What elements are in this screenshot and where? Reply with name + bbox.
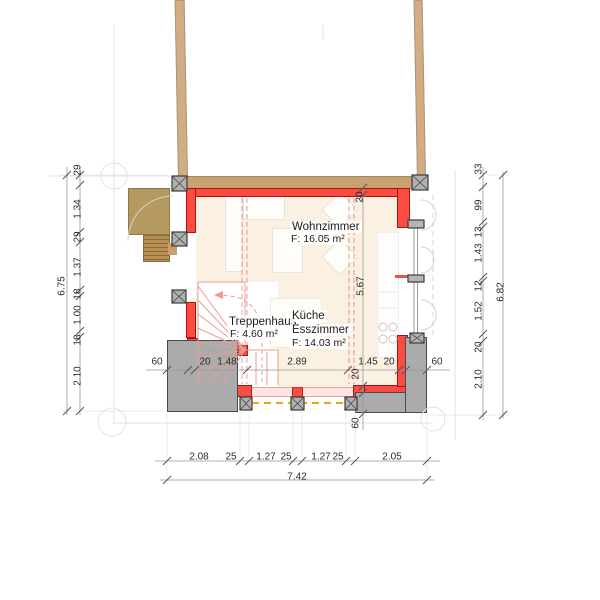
dim-bottom-total: 7.42: [287, 472, 306, 483]
dim-right-5: 1.52: [474, 301, 485, 320]
north-wall: [186, 188, 410, 197]
dim-left-0: 29: [73, 164, 84, 175]
dim-left-6: 18: [73, 334, 84, 345]
upper-wall-strip-right: [414, 0, 426, 178]
dim-mid-3: 2.89: [287, 357, 306, 368]
dim-right-2: 13: [474, 226, 485, 237]
dim-left-total: 6.75: [57, 276, 68, 295]
room-label-esszimmer: Esszimmer: [290, 324, 351, 336]
dim-left-2: 29: [73, 231, 84, 242]
dim-right-1: 99: [474, 199, 485, 210]
stair-newel: [238, 345, 248, 356]
entry-door-sill: [168, 243, 177, 255]
dim-inner-0: 20: [355, 191, 366, 202]
west-wall-a: [186, 188, 196, 233]
dim-bottom-6: 2.05: [382, 452, 401, 463]
upper-wall-strip-left: [175, 0, 188, 178]
dim-left-1: 1.34: [73, 199, 84, 218]
dim-bottom-5: 25: [332, 452, 343, 463]
dim-mid-6: 60: [431, 357, 442, 368]
dim-right-4: 12: [474, 280, 485, 291]
kitchen-counter: [377, 232, 399, 358]
east-pier: [397, 188, 410, 228]
room-label-wohnzimmer: Wohnzimmer: [290, 221, 362, 233]
dim-mid-0: 60: [151, 357, 162, 368]
dim-right-0: 33: [474, 163, 485, 174]
sofa-top: [243, 195, 285, 220]
dim-bottom-2: 1.27: [256, 452, 275, 463]
dim-right-total: 6.82: [496, 282, 507, 301]
dim-bottom-0: 2.08: [189, 452, 208, 463]
dim-left-7: 2.10: [73, 366, 84, 385]
dim-mid-5: 20: [383, 357, 394, 368]
dim-inner-3: 60: [351, 417, 362, 428]
room-area-kueche: F: 14.03 m²: [290, 337, 348, 349]
room-area-wohnzimmer: F: 16.05 m²: [289, 233, 347, 245]
dim-mid-4: 1.45: [358, 357, 377, 368]
dim-bottom-4: 1.27: [311, 452, 330, 463]
dim-right-6: 20: [474, 341, 485, 352]
mullion-tick: [395, 275, 409, 278]
room-label-kueche: Küche: [290, 310, 327, 322]
dim-inner-1: 5.67: [356, 276, 367, 295]
sofa-left: [225, 195, 243, 272]
dim-inner-2: 20: [351, 368, 362, 379]
dim-right-7: 2.10: [474, 369, 485, 388]
dim-right-3: 1.43: [474, 243, 485, 262]
dim-left-4: 18: [73, 288, 84, 299]
southeast-block-horizontal: [355, 392, 406, 413]
dim-left-5: 1.00: [73, 305, 84, 324]
dim-mid-2: 1.48: [217, 357, 236, 368]
floor-plan: Wohnzimmer F: 16.05 m² Treppenhaus F: 4.…: [0, 0, 600, 600]
dim-mid-1: 20: [199, 357, 210, 368]
room-area-treppenhaus: F: 4.60 m²: [228, 328, 280, 340]
room-label-treppenhaus: Treppenhaus: [227, 316, 298, 328]
west-wall-b: [186, 302, 196, 338]
south-opening-lintel: [240, 387, 353, 397]
dim-bottom-1: 25: [225, 452, 236, 463]
southeast-block-vertical: [405, 337, 427, 413]
dim-left-3: 1.37: [73, 257, 84, 276]
southwest-block: [167, 340, 238, 412]
dim-bottom-3: 25: [280, 452, 291, 463]
window-band: [408, 228, 424, 334]
exterior-landing: [128, 188, 170, 235]
exterior-stair: [143, 235, 170, 262]
